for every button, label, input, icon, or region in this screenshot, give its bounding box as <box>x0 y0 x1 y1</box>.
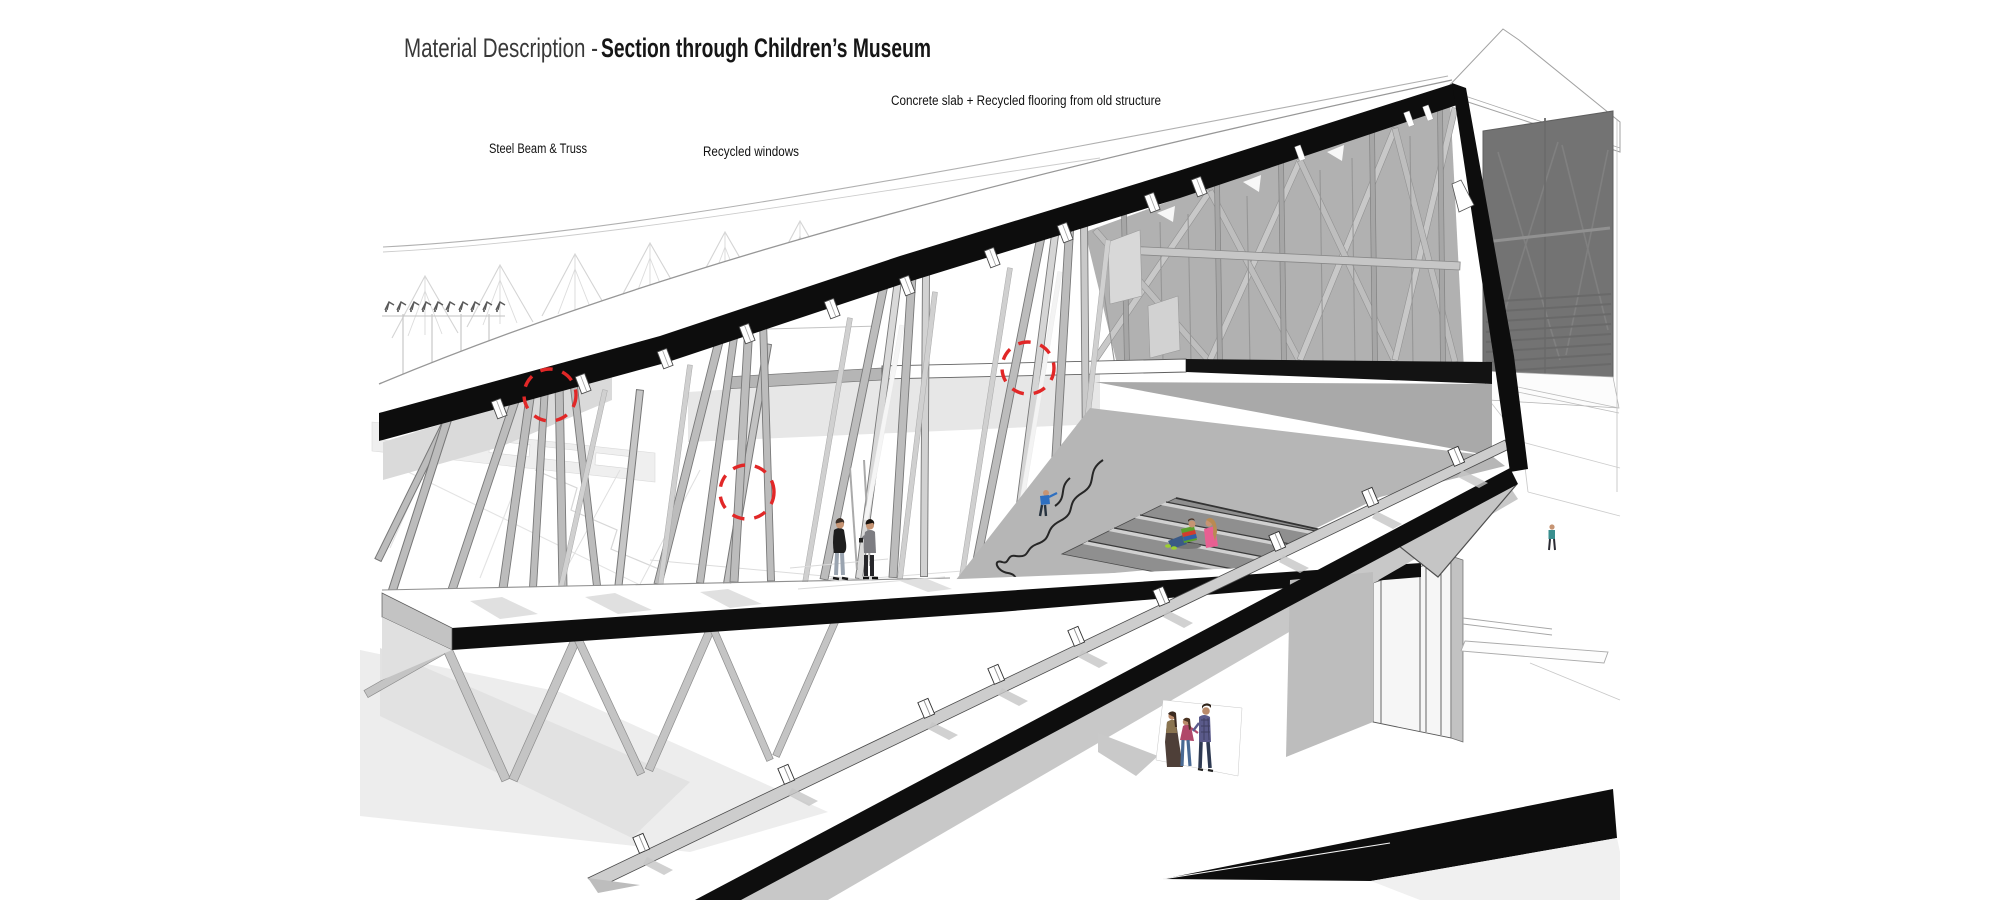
svg-text:Concrete slab + Recycled floor: Concrete slab + Recycled flooring from o… <box>891 93 1161 108</box>
svg-text:Recycled windows: Recycled windows <box>703 144 799 159</box>
svg-text:Material Description -: Material Description - <box>404 33 598 63</box>
svg-text:Steel Beam & Truss: Steel Beam & Truss <box>489 141 587 156</box>
svg-text:Section through Children’s Mus: Section through Children’s Museum <box>601 33 931 63</box>
